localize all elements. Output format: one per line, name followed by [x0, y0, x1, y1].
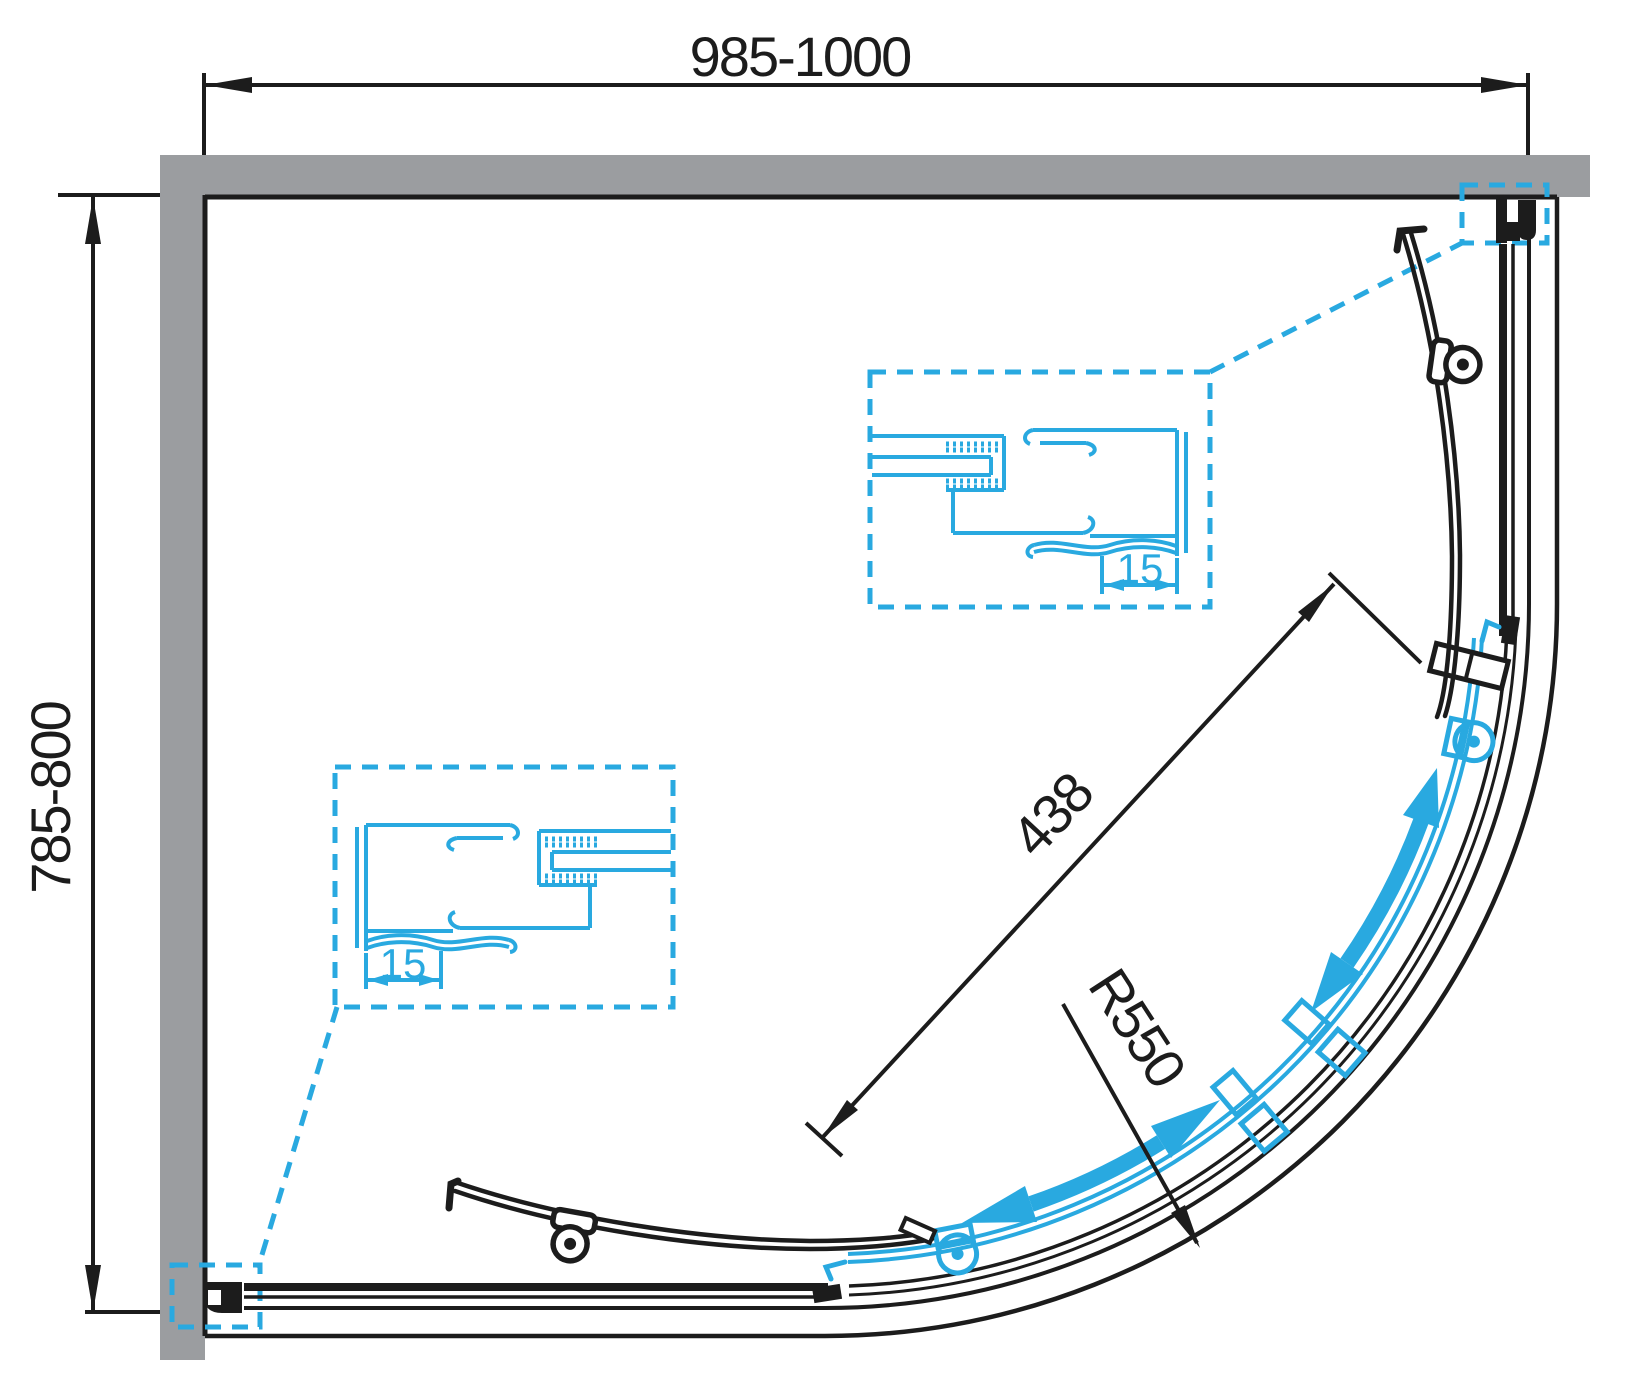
- sliding-door-glass-inner: [848, 638, 1474, 1254]
- sliding-doors: [826, 622, 1508, 1279]
- open-door-leaves: [449, 229, 1483, 1264]
- walls: [160, 155, 1590, 1360]
- arrowhead-top: [85, 197, 101, 244]
- rail-inner-track-b: [849, 628, 1516, 1295]
- dimension-depth: 785-800: [19, 195, 160, 1312]
- wall-left: [160, 155, 205, 1360]
- detail-upper-dimension-label: 15: [1117, 545, 1164, 592]
- wall-profile-bottom-left: [204, 1282, 242, 1313]
- sliding-door-bottom-hook: [826, 1262, 845, 1279]
- width-dimension-label: 985-1000: [690, 25, 911, 88]
- rail-middle: [244, 200, 1529, 1308]
- arrowhead-sw: [822, 1100, 858, 1138]
- detail-lower-dimension-label: 15: [380, 940, 427, 987]
- arrowhead-n: [1403, 768, 1439, 828]
- arrowhead-ne: [1298, 584, 1334, 622]
- detail-callouts: [172, 185, 1547, 1327]
- dimension-door-opening: 438: [806, 573, 1421, 1156]
- detail-lower-profile: 15: [357, 825, 671, 989]
- leaf-end-cap: [901, 1218, 936, 1243]
- shower-enclosure-plan-drawing: 985-1000 785-800 438 R550: [0, 0, 1628, 1400]
- door-guide-clip-top: [1430, 643, 1509, 688]
- door-roller-upper: [1444, 717, 1497, 764]
- arrowhead-left: [205, 77, 252, 93]
- sliding-door-glass-outer: [848, 638, 1482, 1262]
- radius-dimension-label: R550: [1077, 957, 1198, 1097]
- leaf-top-hook: [1397, 229, 1424, 250]
- rail-outer: [205, 197, 1557, 1336]
- wall-profile-brackets: [204, 196, 1536, 1313]
- detail-leader-lower: [258, 1007, 337, 1268]
- leaf-handle-knob: [1428, 339, 1482, 387]
- frame-rails: [205, 197, 1557, 1336]
- bracket-hook: [1518, 200, 1536, 240]
- drawing-canvas: 985-1000 785-800 438 R550: [0, 0, 1628, 1400]
- wall-top: [160, 155, 1590, 197]
- wall-profile-top-right: [1496, 196, 1536, 243]
- bracket-bridge: [1505, 222, 1520, 241]
- depth-dimension-label: 785-800: [19, 702, 82, 894]
- door-roller-lower: [934, 1224, 980, 1276]
- arrowhead-sw: [962, 1186, 1037, 1223]
- sliding-door-top-hook: [1482, 622, 1499, 641]
- dimension-width: 985-1000: [204, 25, 1528, 155]
- rail-inner-track-a: [849, 628, 1507, 1286]
- dimension-lines: [806, 573, 1421, 1156]
- leaf-handle-knob: [546, 1209, 596, 1265]
- bracket-notch: [208, 1290, 221, 1305]
- dimension-radius: R550: [1063, 957, 1200, 1248]
- arrowhead-right: [1481, 77, 1528, 93]
- leaf-end-hook: [449, 1181, 458, 1208]
- arrowhead-bottom: [85, 1265, 101, 1312]
- detail-upper-profile: 15: [872, 430, 1186, 594]
